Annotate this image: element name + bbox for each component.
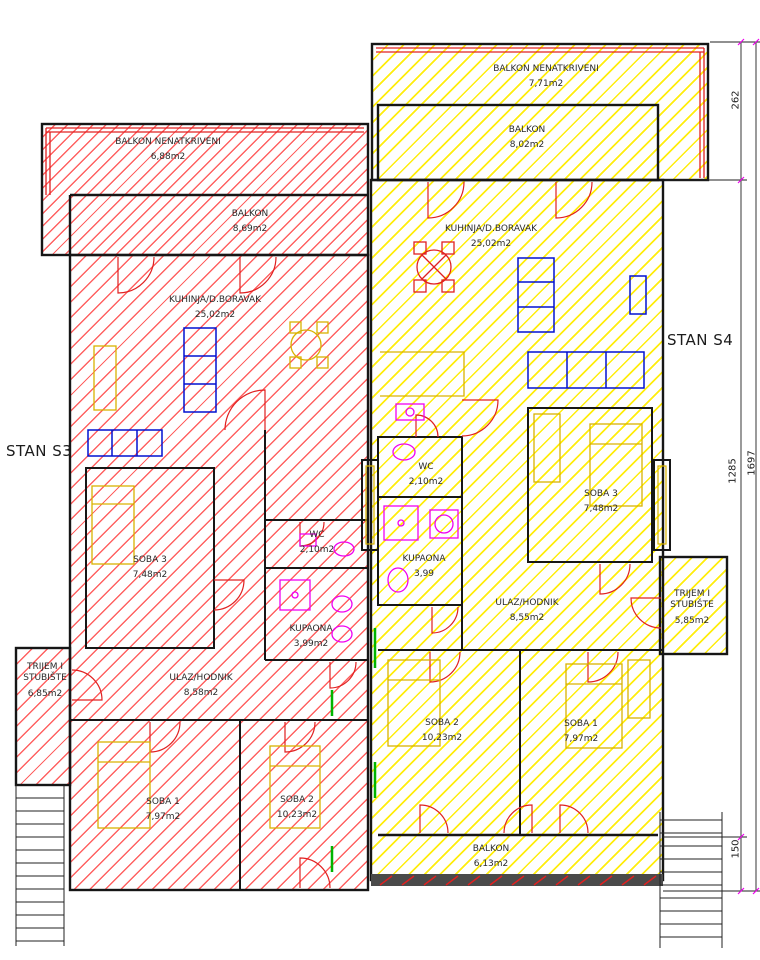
stairs-left [16,785,64,946]
room-name: SOBA 3 [133,555,168,566]
room-area: 5,85m2 [662,616,722,627]
room-name: WC [300,530,335,541]
room-label-s4-balkon-nenatkriveni: BALKON NENATKRIVENI 7,71m2 [493,64,599,91]
room-label-s4-trijem: TRIJEM I STUBIŠTE 5,85m2 [662,589,722,627]
room-area: 8,69m2 [232,224,269,235]
room-area: 8,58m2 [169,688,232,699]
room-label-s3-soba1: SOBA 1 7,97m2 [146,797,181,824]
room-name: KUHINJA/D.BORAVAK [169,295,261,306]
room-name: BALKON [473,844,510,855]
room-name: KUHINJA/D.BORAVAK [445,224,537,235]
dimension-label-150: 150 [731,839,742,858]
room-area: 25,02m2 [445,239,537,250]
room-label-s4-kupaona: KUPAONA 3,99 [402,554,445,581]
room-area: 6,88m2 [115,152,221,163]
room-label-s4-balkon-donji: BALKON 6,13m2 [473,844,510,871]
room-label-s3-kuhinja: KUHINJA/D.BORAVAK 25,02m2 [169,295,261,322]
room-label-s4-wc: WC 2,10m2 [409,462,444,489]
room-area: 2,10m2 [409,477,444,488]
room-area: 25,02m2 [169,310,261,321]
room-name: BALKON NENATKRIVENI [493,64,599,75]
apartment-title-s3: STAN S3 [6,442,72,460]
room-name: KUPAONA [402,554,445,565]
room-label-s3-balkon: BALKON 8,69m2 [232,209,269,236]
room-area: 7,71m2 [493,79,599,90]
room-label-s4-ulaz: ULAZ/HODNIK 8,55m2 [495,598,558,625]
room-name: WC [409,462,444,473]
room-name: SOBA 1 [564,719,599,730]
balcony-parapet-band [371,874,663,886]
room-name: SOBA 2 [422,718,462,729]
room-name: TRIJEM I STUBIŠTE [15,662,75,685]
room-area: 8,02m2 [509,140,546,151]
room-area: 3,99m2 [289,639,332,650]
room-name: BALKON NENATKRIVENI [115,137,221,148]
room-name: SOBA 3 [584,489,619,500]
room-name: TRIJEM I STUBIŠTE [662,589,722,612]
room-name: KUPAONA [289,624,332,635]
room-area: 3,99 [402,569,445,580]
railing-red [46,48,704,195]
room-name: BALKON [509,125,546,136]
room-area: 7,48m2 [133,570,168,581]
floorplan-canvas: STAN S3 STAN S4 BALKON NENATKRIVENI 6,88… [0,0,760,960]
stairs-right [660,812,722,948]
floorplan-linework [0,0,760,960]
room-name: BALKON [232,209,269,220]
room-area: 10,23m2 [277,810,317,821]
room-label-s3-kupaona: KUPAONA 3,99m2 [289,624,332,651]
room-name: ULAZ/HODNIK [495,598,558,609]
dimension-label-1697: 1697 [747,450,758,475]
room-label-s4-soba2: SOBA 2 10,23m2 [422,718,462,745]
room-label-s3-soba2: SOBA 2 10,23m2 [277,795,317,822]
room-label-s3-ulaz: ULAZ/HODNIK 8,58m2 [169,673,232,700]
room-label-s4-kuhinja: KUHINJA/D.BORAVAK 25,02m2 [445,224,537,251]
dimension-lines [663,42,760,891]
room-label-s3-wc: WC 2,10m2 [300,530,335,557]
room-label-s4-soba1: SOBA 1 7,97m2 [564,719,599,746]
dimension-label-1285: 1285 [728,458,739,483]
room-area: 6,85m2 [15,689,75,700]
room-label-s3-soba3: SOBA 3 7,48m2 [133,555,168,582]
room-name: ULAZ/HODNIK [169,673,232,684]
room-area: 7,97m2 [146,812,181,823]
room-name: SOBA 1 [146,797,181,808]
dimension-label-262: 262 [731,90,742,109]
room-area: 6,13m2 [473,859,510,870]
room-label-s3-balkon-nenatkriveni: BALKON NENATKRIVENI 6,88m2 [115,137,221,164]
room-area: 7,48m2 [584,504,619,515]
room-label-s3-trijem: TRIJEM I STUBIŠTE 6,85m2 [15,662,75,700]
room-label-s4-soba3: SOBA 3 7,48m2 [584,489,619,516]
room-name: SOBA 2 [277,795,317,806]
room-area: 8,55m2 [495,613,558,624]
room-area: 2,10m2 [300,545,335,556]
apartment-title-s4: STAN S4 [667,331,733,349]
room-area: 7,97m2 [564,734,599,745]
room-area: 10,23m2 [422,733,462,744]
room-label-s4-balkon: BALKON 8,02m2 [509,125,546,152]
